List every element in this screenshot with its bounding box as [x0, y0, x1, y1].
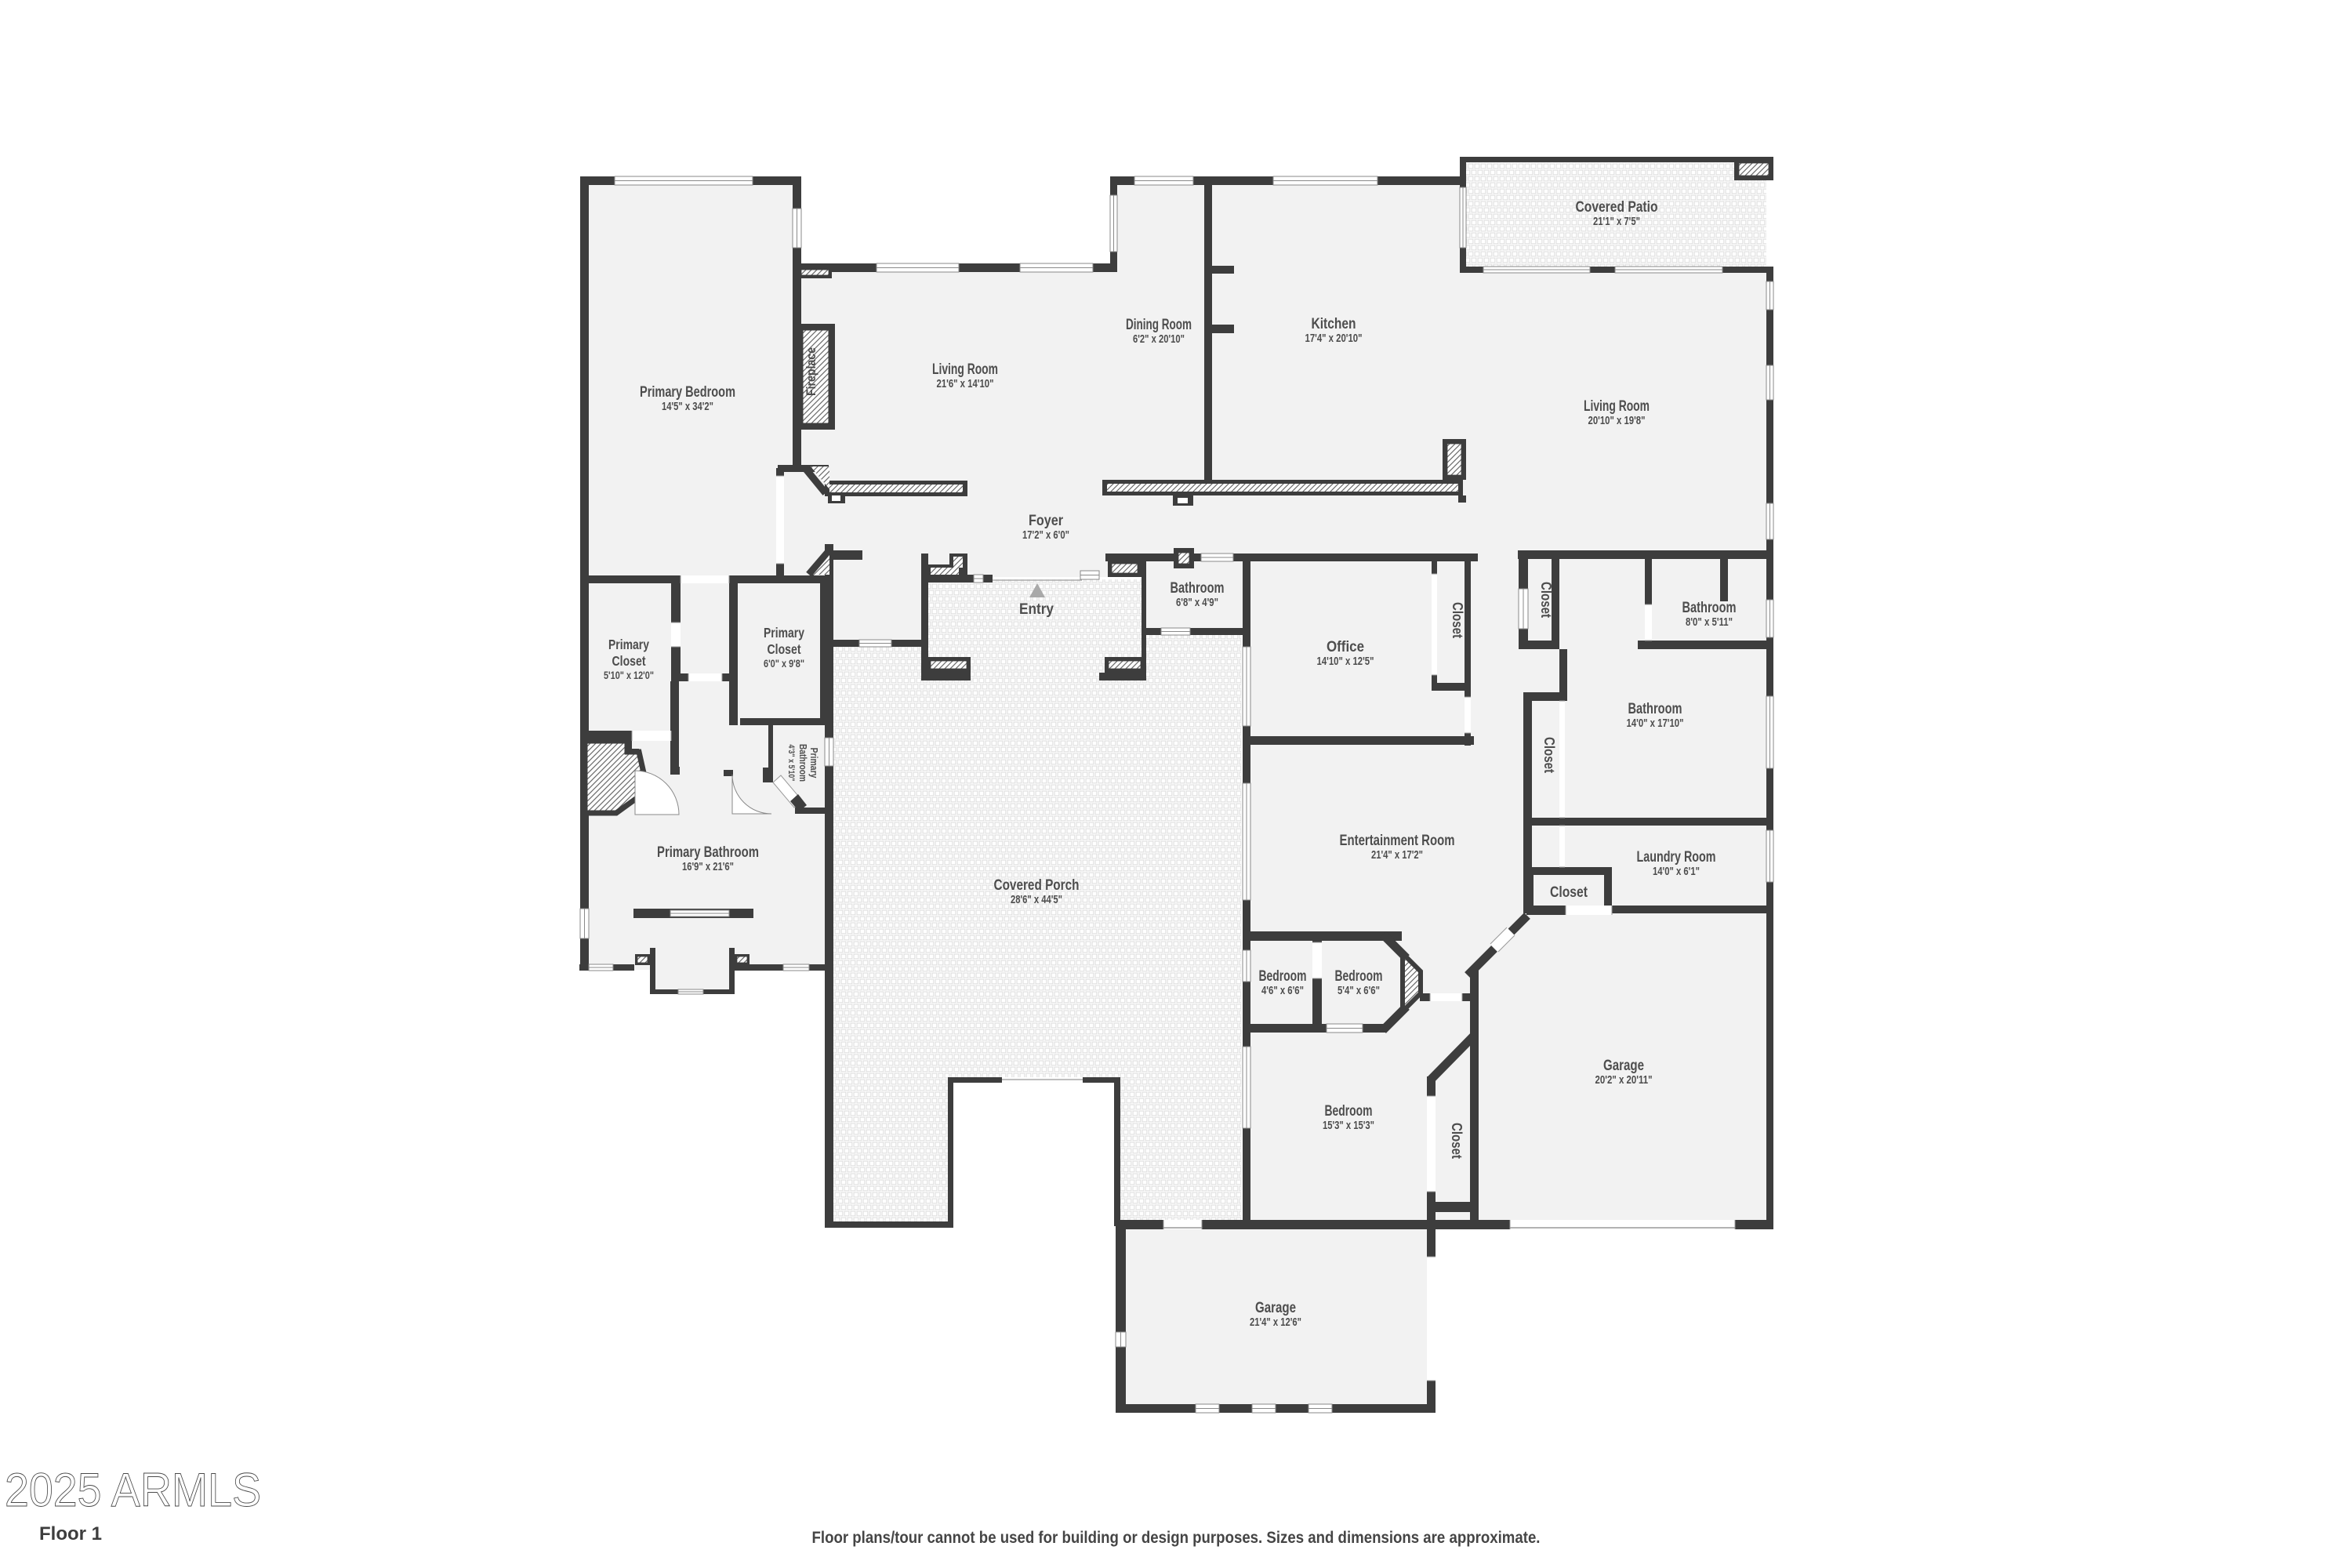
- svg-text:Closet: Closet: [768, 641, 801, 657]
- svg-text:Covered Patio: Covered Patio: [1576, 199, 1658, 216]
- svg-text:15'3" x 15'3": 15'3" x 15'3": [1323, 1120, 1374, 1132]
- svg-text:Office: Office: [1327, 639, 1364, 655]
- svg-text:Foyer: Foyer: [1029, 513, 1064, 529]
- svg-text:21'4" x 12'6": 21'4" x 12'6": [1250, 1316, 1301, 1329]
- svg-text:14'0" x 17'10": 14'0" x 17'10": [1627, 717, 1684, 730]
- svg-text:8'0" x 5'11": 8'0" x 5'11": [1686, 616, 1733, 629]
- svg-text:Living Room: Living Room: [1584, 398, 1650, 415]
- svg-text:6'0" x 9'8": 6'0" x 9'8": [764, 658, 804, 670]
- svg-text:14'10" x 12'5": 14'10" x 12'5": [1317, 655, 1374, 668]
- svg-text:Laundry Room: Laundry Room: [1637, 849, 1716, 866]
- svg-text:Closet: Closet: [1449, 1123, 1465, 1159]
- svg-text:2025 ARMLS: 2025 ARMLS: [5, 1464, 261, 1516]
- svg-text:5'4" x 6'6": 5'4" x 6'6": [1338, 985, 1380, 997]
- svg-text:Dining Room: Dining Room: [1126, 317, 1192, 333]
- svg-text:Primary: Primary: [808, 748, 820, 779]
- svg-text:Garage: Garage: [1255, 1300, 1296, 1316]
- svg-text:Primary: Primary: [608, 637, 649, 652]
- svg-text:Closet: Closet: [1538, 582, 1554, 618]
- svg-text:6'8" x 4'9": 6'8" x 4'9": [1176, 597, 1218, 609]
- svg-text:21'6" x 14'10": 21'6" x 14'10": [937, 378, 994, 390]
- svg-text:Fireplace: Fireplace: [804, 347, 818, 396]
- svg-text:14'0" x 6'1": 14'0" x 6'1": [1653, 866, 1700, 878]
- svg-text:Primary Bathroom: Primary Bathroom: [657, 844, 759, 861]
- svg-text:Floor 1: Floor 1: [39, 1523, 102, 1544]
- svg-text:Closet: Closet: [1550, 884, 1588, 901]
- svg-text:Entry: Entry: [1019, 601, 1054, 618]
- svg-text:Primary Bedroom: Primary Bedroom: [640, 384, 735, 401]
- svg-text:21'4" x 17'2": 21'4" x 17'2": [1371, 849, 1423, 862]
- svg-text:Entertainment Room: Entertainment Room: [1340, 833, 1455, 849]
- svg-text:Kitchen: Kitchen: [1312, 316, 1356, 332]
- svg-text:Garage: Garage: [1603, 1058, 1644, 1074]
- svg-text:Closet: Closet: [612, 653, 646, 669]
- svg-text:17'2" x 6'0": 17'2" x 6'0": [1022, 529, 1069, 542]
- svg-text:4'3" x 5'10": 4'3" x 5'10": [786, 745, 796, 782]
- svg-text:5'10" x 12'0": 5'10" x 12'0": [604, 670, 654, 681]
- svg-text:17'4" x 20'10": 17'4" x 20'10": [1305, 332, 1363, 345]
- svg-text:Bathroom: Bathroom: [1628, 701, 1682, 717]
- svg-text:Living Room: Living Room: [932, 361, 998, 378]
- svg-text:Bedroom: Bedroom: [1259, 968, 1307, 985]
- svg-text:28'6" x 44'5": 28'6" x 44'5": [1011, 894, 1062, 906]
- svg-text:21'1" x 7'5": 21'1" x 7'5": [1593, 216, 1640, 228]
- svg-text:6'2" x 20'10": 6'2" x 20'10": [1133, 333, 1185, 346]
- svg-text:Bedroom: Bedroom: [1335, 968, 1383, 985]
- svg-text:4'6" x 6'6": 4'6" x 6'6": [1261, 985, 1304, 997]
- svg-text:Primary: Primary: [764, 625, 804, 641]
- svg-text:Covered Porch: Covered Porch: [994, 877, 1080, 894]
- svg-text:14'5" x 34'2": 14'5" x 34'2": [662, 401, 713, 413]
- svg-text:Closet: Closet: [1541, 737, 1557, 773]
- svg-text:Bedroom: Bedroom: [1325, 1103, 1373, 1120]
- svg-text:20'10" x 19'8": 20'10" x 19'8": [1588, 415, 1646, 427]
- svg-text:Bathroom: Bathroom: [1682, 600, 1737, 616]
- svg-text:Closet: Closet: [1450, 602, 1465, 638]
- svg-text:Bathroom: Bathroom: [797, 744, 809, 782]
- svg-text:16'9" x 21'6": 16'9" x 21'6": [682, 861, 734, 873]
- svg-text:Bathroom: Bathroom: [1171, 580, 1225, 597]
- svg-text:20'2" x 20'11": 20'2" x 20'11": [1595, 1074, 1653, 1087]
- svg-text:Floor plans/tour cannot be use: Floor plans/tour cannot be used for buil…: [812, 1529, 1541, 1547]
